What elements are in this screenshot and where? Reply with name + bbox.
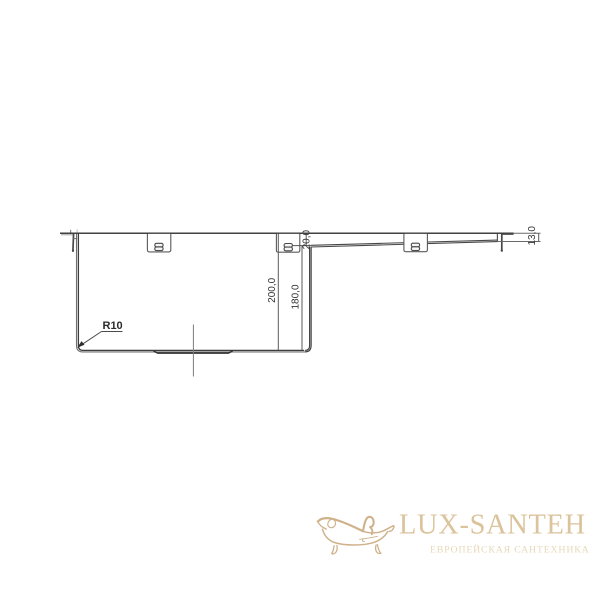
svg-text:LUX-SANTEH: LUX-SANTEH (399, 510, 586, 541)
svg-text:R10: R10 (103, 320, 123, 332)
svg-text:200,0: 200,0 (267, 277, 278, 302)
svg-text:13,0: 13,0 (527, 226, 538, 246)
svg-text:180,0: 180,0 (291, 284, 302, 309)
svg-text:ЕВРОПЕЙСКАЯ САНТЕХНИКА: ЕВРОПЕЙСКАЯ САНТЕХНИКА (430, 544, 589, 556)
